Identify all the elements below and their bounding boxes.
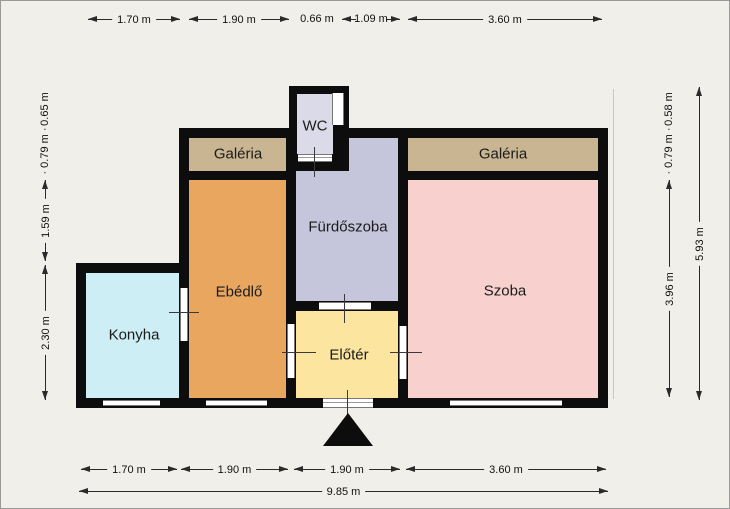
- wall-galeria-right-bottom: [398, 171, 608, 180]
- door-eloter-ebedlo: [287, 324, 295, 378]
- dim-top-4: 1.09 m: [354, 13, 388, 25]
- floor-plan: Konyha Ebédlő Galéria WC Fürdőszoba Galé…: [0, 0, 730, 509]
- door-konyha-ebedlo: [180, 288, 188, 341]
- dim-bottom-3: 1.90 m: [294, 469, 400, 470]
- label-galeria-left: Galéria: [214, 146, 262, 163]
- dim-top-1: 1.70 m: [88, 19, 180, 20]
- dim-top-2: 1.90 m: [189, 19, 289, 20]
- dim-left-2: · 0.79 m ·: [39, 127, 51, 174]
- door-eloter-ebedlo-leaf: [282, 352, 316, 353]
- dim-bottom-total: 9.85 m: [79, 491, 608, 492]
- dim-right-3: 3.96 m: [669, 180, 670, 397]
- entrance-door: [323, 398, 373, 408]
- entrance-arrow: [323, 413, 373, 446]
- label-furdoszoba: Fürdőszoba: [308, 219, 387, 236]
- door-eloter-furdoszoba-leaf: [344, 294, 345, 323]
- wall-right: [598, 128, 608, 408]
- window-ebedlo: [206, 400, 267, 406]
- label-szoba: Szoba: [484, 283, 527, 300]
- dim-right-total: 5.93 m: [699, 87, 700, 400]
- extension-line-right: [613, 89, 614, 399]
- label-ebedlo: Ebédlő: [216, 284, 263, 301]
- wall-top: [179, 128, 608, 138]
- dim-top-5: 3.60 m: [408, 19, 602, 20]
- dim-left-1: 0.65 m: [39, 92, 51, 126]
- dim-left-4: 2.30 m: [45, 265, 46, 400]
- wall-galeria-left-bottom: [179, 171, 296, 180]
- dim-top-3: 0.66 m: [300, 13, 334, 25]
- dim-right-2: · 0.79 m ·: [663, 127, 675, 174]
- door-eloter-furdoszoba: [319, 302, 371, 310]
- label-konyha: Konyha: [109, 327, 160, 344]
- dim-bottom-4: 3.60 m: [406, 469, 606, 470]
- label-galeria-right: Galéria: [479, 146, 527, 163]
- window-konyha: [103, 400, 160, 406]
- label-eloter: Előtér: [329, 347, 368, 364]
- wc-window: [332, 93, 344, 125]
- wall-konyha-top: [76, 263, 189, 273]
- wc-door-leaf: [314, 147, 315, 177]
- dim-right-1: 0.58 m: [663, 92, 675, 126]
- wall-konyha-left: [76, 263, 86, 408]
- dim-left-3: 1.59 m: [45, 180, 46, 261]
- window-szoba: [450, 400, 562, 406]
- dim-bottom-2: 1.90 m: [181, 469, 288, 470]
- wc-door: [298, 154, 332, 162]
- label-wc: WC: [303, 118, 328, 135]
- door-konyha-ebedlo-leaf: [169, 312, 199, 313]
- door-eloter-szoba-leaf: [390, 352, 422, 353]
- dim-top-4-arrow-right: [386, 19, 400, 20]
- dim-bottom-1: 1.70 m: [81, 469, 177, 470]
